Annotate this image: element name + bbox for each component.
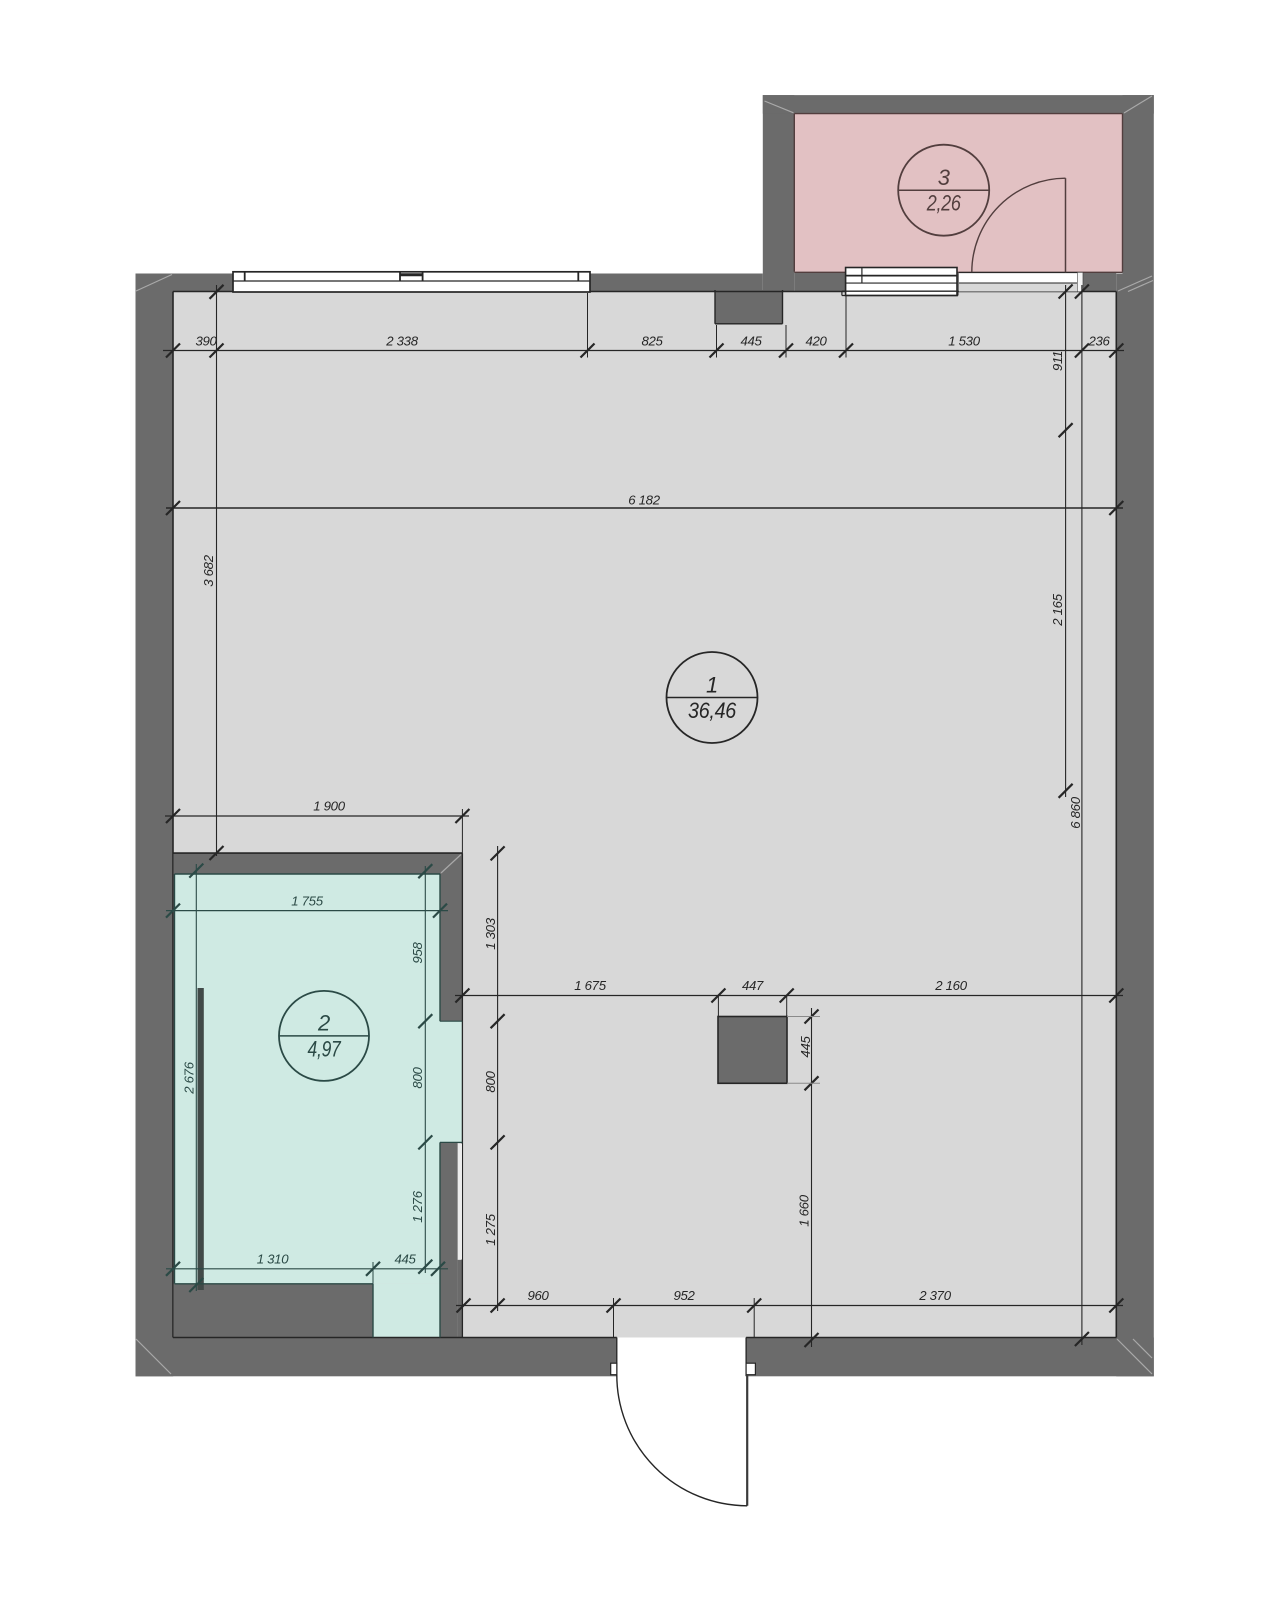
svg-text:2 338: 2 338 <box>385 334 418 349</box>
svg-text:6 182: 6 182 <box>628 493 660 508</box>
svg-text:447: 447 <box>742 978 764 993</box>
svg-text:1 530: 1 530 <box>948 334 980 349</box>
svg-text:236: 236 <box>1087 334 1110 349</box>
svg-text:911: 911 <box>1050 351 1065 371</box>
svg-text:800: 800 <box>483 1070 498 1092</box>
svg-text:1: 1 <box>706 672 718 697</box>
svg-text:6 860: 6 860 <box>1068 796 1083 828</box>
svg-text:2,26: 2,26 <box>926 191 962 216</box>
svg-text:2 676: 2 676 <box>182 1061 197 1094</box>
svg-text:36,46: 36,46 <box>688 698 737 723</box>
svg-text:1 275: 1 275 <box>483 1213 498 1245</box>
svg-text:3: 3 <box>938 165 951 190</box>
svg-text:2 165: 2 165 <box>1050 593 1065 626</box>
svg-text:445: 445 <box>740 334 762 349</box>
svg-text:390: 390 <box>195 334 217 349</box>
svg-text:1 660: 1 660 <box>797 1194 812 1226</box>
svg-text:3 682: 3 682 <box>201 554 216 586</box>
svg-text:1 900: 1 900 <box>313 799 345 814</box>
svg-text:958: 958 <box>410 941 425 963</box>
svg-text:1 675: 1 675 <box>574 978 606 993</box>
svg-text:800: 800 <box>410 1066 425 1088</box>
svg-text:445: 445 <box>798 1035 813 1057</box>
svg-text:2 160: 2 160 <box>934 978 967 993</box>
svg-text:1 310: 1 310 <box>257 1252 289 1267</box>
svg-text:2: 2 <box>317 1011 330 1036</box>
svg-text:960: 960 <box>527 1288 549 1303</box>
svg-text:445: 445 <box>394 1252 416 1267</box>
svg-text:4,97: 4,97 <box>308 1036 342 1061</box>
svg-text:1 303: 1 303 <box>483 917 498 949</box>
svg-text:1 276: 1 276 <box>410 1190 425 1222</box>
svg-text:2 370: 2 370 <box>918 1288 951 1303</box>
svg-text:420: 420 <box>805 334 827 349</box>
svg-text:952: 952 <box>673 1288 695 1303</box>
svg-text:1 755: 1 755 <box>291 894 323 909</box>
svg-text:825: 825 <box>641 334 663 349</box>
